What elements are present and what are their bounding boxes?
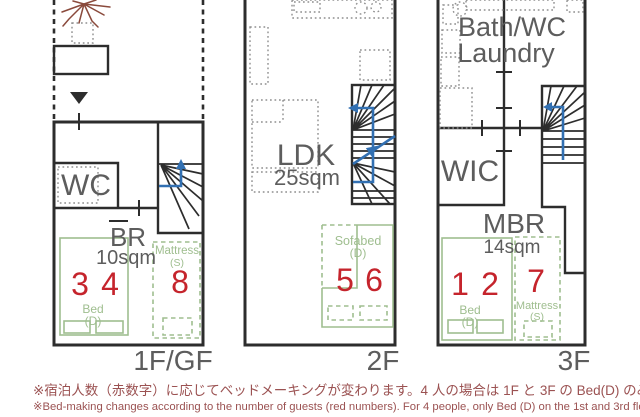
door-marks-3f	[482, 72, 520, 151]
room-size-mbr: 14sqm	[483, 238, 540, 257]
room-label-mbr: MBR	[483, 210, 545, 238]
door-marks-1f	[79, 113, 139, 221]
note-japanese: ※宿泊人数（赤数字）に応じてベッドメーキングが変わります。4 人の場合は 1F …	[33, 383, 640, 399]
room-label-laundry: Laundry	[457, 40, 555, 67]
site-boundary-dashed	[54, 0, 203, 122]
mattress-label-1f: Mattress	[155, 246, 199, 258]
stairs-2f-icon	[348, 85, 395, 204]
guest-number-3: 3	[71, 268, 89, 300]
floor-label-2f: 2F	[367, 347, 400, 375]
guest-number-2: 2	[481, 268, 499, 300]
guest-number-4: 4	[101, 268, 119, 300]
kitchen-dotted	[250, 0, 392, 84]
mattress-size-3f: (S)	[530, 312, 544, 323]
room-label-wc: WC	[61, 171, 111, 201]
bed-type-1f: (D)	[85, 315, 102, 327]
exterior-dotted-box	[72, 23, 93, 43]
room-size-br: 10sqm	[96, 248, 156, 268]
entrance-arrow-icon	[70, 92, 88, 104]
note-english: ※Bed-making changes according to the num…	[33, 401, 640, 415]
guest-number-6: 6	[365, 264, 383, 296]
guest-number-7: 7	[527, 265, 545, 297]
room-size-ldk: 25sqm	[274, 167, 340, 189]
guest-number-5: 5	[336, 264, 354, 296]
floor-label-1f: 1F/GF	[133, 347, 212, 375]
stairs-3f-icon	[542, 86, 585, 163]
room-label-bath-wc: Bath/WC	[458, 14, 566, 41]
guest-number-1: 1	[451, 268, 469, 300]
mattress-size-1f: (S)	[170, 258, 184, 269]
guest-number-8: 8	[171, 266, 189, 298]
entrance-porch	[54, 46, 108, 74]
stairs-1f-icon	[158, 159, 203, 229]
floor-label-3f: 3F	[558, 347, 591, 375]
bed-type-3f: (D)	[462, 316, 479, 328]
floor-plan: WC BR 10sqm 3 4 8 Bed (D) Mattress (S) 1…	[0, 0, 640, 417]
room-label-wic: WIC	[441, 157, 499, 187]
sofabed-type: (D)	[350, 247, 367, 259]
